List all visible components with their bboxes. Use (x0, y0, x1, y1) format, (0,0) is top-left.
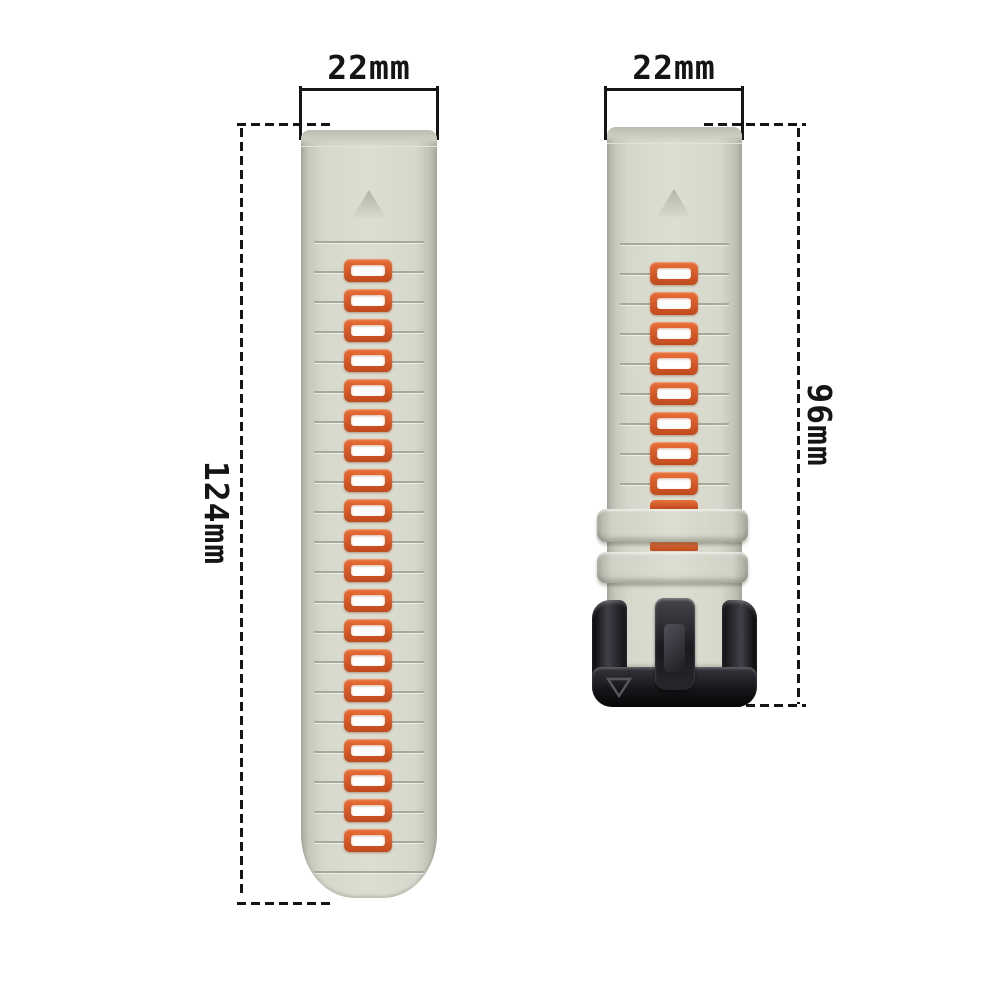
right-width-dimension-line (606, 88, 742, 91)
strap-hole (344, 589, 392, 612)
strap-hole (344, 679, 392, 702)
strap-hole-opening (351, 295, 385, 306)
strap-hole (344, 289, 392, 312)
strap-groove (314, 871, 424, 873)
left-length-dimension-line (240, 128, 243, 894)
strap-hole (650, 292, 698, 315)
strap-hole-opening (351, 325, 385, 336)
strap-hole (344, 739, 392, 762)
strap-hole-opening (351, 565, 385, 576)
buckle-prong (655, 598, 695, 690)
triangle-up-icon (352, 190, 386, 218)
strap-hole-opening (351, 595, 385, 606)
strap-hole-opening (351, 355, 385, 366)
strap-groove (314, 241, 424, 243)
strap-hole (344, 439, 392, 462)
strap-hole-opening (351, 265, 385, 276)
strap-hole-opening (351, 535, 385, 546)
strap-hole (344, 349, 392, 372)
keeper-loop-2 (597, 552, 748, 583)
strap-hole (344, 829, 392, 852)
strap-top-cap (301, 130, 437, 147)
strap-hole (344, 259, 392, 282)
strap-hole (344, 709, 392, 732)
strap-hole-opening (657, 448, 691, 459)
strap-hole-opening (351, 475, 385, 486)
strap-hole-opening (351, 505, 385, 516)
strap-hole (650, 352, 698, 375)
left-width-dimension-line (301, 88, 437, 91)
strap-hole-opening (657, 358, 691, 369)
strap-hole (344, 799, 392, 822)
strap-hole-opening (657, 328, 691, 339)
strap-hole-opening (351, 445, 385, 456)
triangle-up-icon (657, 189, 691, 217)
left-strap (301, 130, 437, 898)
strap-hole-opening (351, 745, 385, 756)
strap-hole (344, 469, 392, 492)
strap-hole-opening (657, 478, 691, 489)
strap-hole-between-keepers (650, 542, 698, 551)
strap-hole (344, 649, 392, 672)
strap-hole-opening (351, 415, 385, 426)
strap-hole-opening (351, 685, 385, 696)
strap-hole (650, 382, 698, 405)
right-strap (607, 127, 742, 667)
strap-hole (344, 319, 392, 342)
strap-hole (344, 409, 392, 432)
left-top-extension-line (237, 123, 332, 126)
buckle-prong-facet (664, 624, 685, 672)
strap-hole (344, 529, 392, 552)
right-width-label: 22mm (574, 48, 774, 87)
strap-hole-opening (657, 388, 691, 399)
left-length-label: 124mm (197, 413, 235, 613)
strap-hole (650, 412, 698, 435)
dimension-tick (604, 86, 607, 140)
v-outline-logo-icon (605, 676, 633, 700)
strap-hole (344, 619, 392, 642)
strap-hole (344, 559, 392, 582)
strap-hole-opening (351, 835, 385, 846)
strap-hole-partial (650, 500, 698, 509)
strap-hole (650, 472, 698, 495)
strap-hole-opening (351, 775, 385, 786)
dimension-tick (436, 86, 439, 140)
strap-hole (344, 379, 392, 402)
strap-hole-opening (351, 655, 385, 666)
strap-hole-opening (351, 715, 385, 726)
strap-hole-opening (657, 298, 691, 309)
strap-groove (620, 243, 729, 245)
strap-hole (650, 322, 698, 345)
strap-hole (650, 442, 698, 465)
watch-strap-dimension-figure: 22mm 124mm 22mm 96mm (0, 0, 1000, 1000)
left-width-label: 22mm (269, 48, 469, 87)
left-bottom-extension-line (237, 902, 334, 905)
strap-hole-opening (351, 805, 385, 816)
strap-hole (344, 499, 392, 522)
strap-hole (650, 262, 698, 285)
strap-hole (344, 769, 392, 792)
keeper-loop-1 (597, 509, 748, 542)
strap-hole-opening (351, 385, 385, 396)
strap-hole-opening (657, 268, 691, 279)
dimension-tick (299, 86, 302, 140)
right-top-extension-line (704, 123, 806, 126)
strap-top-cap (607, 127, 742, 144)
strap-hole-opening (657, 418, 691, 429)
strap-hole-opening (351, 625, 385, 636)
right-length-label: 96mm (800, 325, 838, 525)
